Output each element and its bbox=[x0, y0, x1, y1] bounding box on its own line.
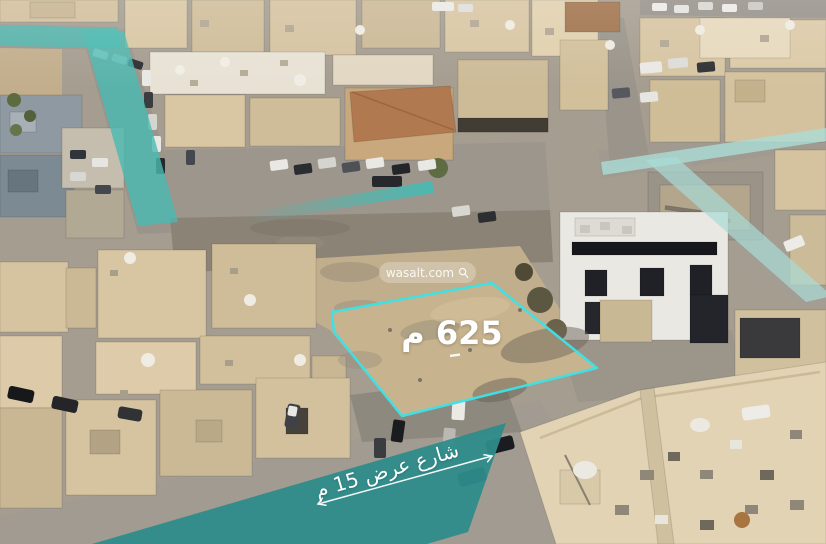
top-haze bbox=[0, 0, 826, 90]
aerial-scene bbox=[0, 0, 826, 544]
aerial-photo: 625 م شارع عرض 15 م wasalt.com bbox=[0, 0, 826, 544]
